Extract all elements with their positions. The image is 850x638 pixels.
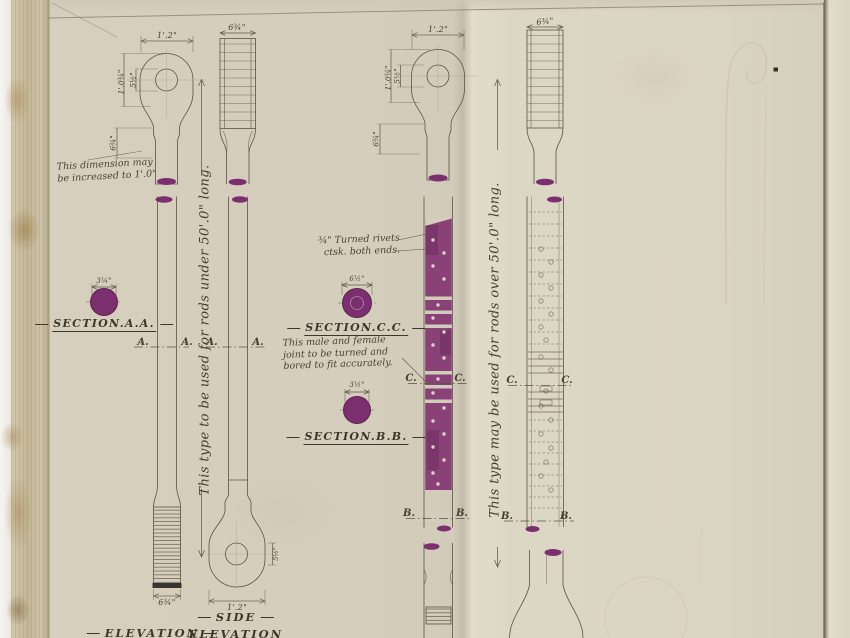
marker-c: C. [561,375,572,386]
rod2-dimension-lines [209,543,276,605]
dim-rod2-hole: 5½" [272,547,280,560]
section-bb-label: SECTION.B.B. [286,430,425,445]
section-aa-label: SECTION.A.A. [35,317,173,332]
side-elevation-label-line1: SIDE [198,610,274,624]
label-dash [160,324,173,325]
label-dash [413,437,426,438]
label-dash [198,617,211,618]
rod4-jointed-side [504,27,583,638]
section-cc-label: SECTION.C.C. [287,321,425,336]
label-dash [35,324,48,325]
purple-tip [156,196,173,202]
marker-c: C. [405,373,416,384]
dim-rod1-head: 1'.0¾" [117,70,126,95]
marker-c: C. [506,375,517,386]
marker-a: A. [252,337,263,348]
section-cc-view [338,282,376,318]
section-aa-view [86,284,122,316]
type-note-left: This type to be used for rods under 50'.… [198,164,213,495]
purple-tip [429,175,448,182]
joint-note: This male and female joint to be turned … [282,334,392,372]
type-note-right: This type may be used for rods over 50'.… [488,182,503,518]
label-dash [412,328,425,329]
dim-rod1-top: 1'.2" [157,31,177,40]
dim-rod3-head: 1'.0¾" [384,66,393,91]
label-dash [87,633,100,634]
marker-b: B. [560,511,572,522]
section-cc-text: SECTION.C.C. [304,321,408,336]
side-elevation-label-line2: ELEVATION [189,627,283,638]
section-bb-view [340,389,374,424]
marker-b: B. [501,511,513,522]
dim-section-bb: 3½" [349,381,364,389]
ghost-impressions [605,43,778,638]
dim-rod3-neck: 6¾" [372,131,381,147]
dim-rod1-hole: 5½" [129,72,138,88]
hidden-detail-dashes [529,212,562,508]
purple-tip [536,179,554,186]
label-dash [286,437,299,438]
marker-a: A. [137,337,148,348]
label-dash [261,617,274,618]
section-bb-circle [344,397,371,424]
rod3-dimension-lines [377,30,464,154]
purple-tip [424,543,440,550]
side-elevation-text: ELEVATION [189,627,283,638]
section-bb-text: SECTION.B.B. [303,430,408,445]
note-leader-lines [396,234,427,382]
label-dash [287,328,300,329]
marker-a: A. [181,337,192,348]
purple-tip [229,179,247,186]
marker-c: C. [454,373,465,384]
rivets-note: ¾" Turned rivets ctsk. both ends. [318,233,401,259]
dim-rod1-neck: 6¾" [109,135,118,151]
purple-tip [232,196,248,202]
joint-band-lines [528,352,563,412]
hidden-rivet-circles [539,247,553,492]
marker-b: B. [403,508,415,519]
dim-rod4-top: 6¾" [536,16,554,27]
purple-tip [526,526,540,532]
side-text: SIDE [216,610,256,624]
scanned-drawing-page: 1'.2" 5½" 1'.0¾" 6¾" 6¾" 6¾" 1'.2" 5½" T… [0,0,850,638]
dim-rod3-top: 1'.2" [428,25,448,34]
section-aa-circle [91,289,118,316]
section-cc-circle [343,289,372,318]
section-aa-text: SECTION.A.A. [52,317,156,332]
dim-section-cc: 6½" [349,275,364,283]
purple-tip [547,197,562,203]
marker-b: B. [456,508,468,519]
purple-tip [545,549,562,556]
dim-rod1-end: 6¾" [158,598,175,607]
purple-tip [157,178,176,185]
dim-rod3-hole: 5½" [393,68,402,84]
dim-rod2-top: 6¾" [228,23,245,32]
purple-tip [437,526,451,532]
rod3-joint-fill [425,219,452,491]
elevation-text: ELEVATION [105,626,199,638]
dim-section-aa: 3¼" [96,277,111,285]
ink-speck [774,68,779,72]
